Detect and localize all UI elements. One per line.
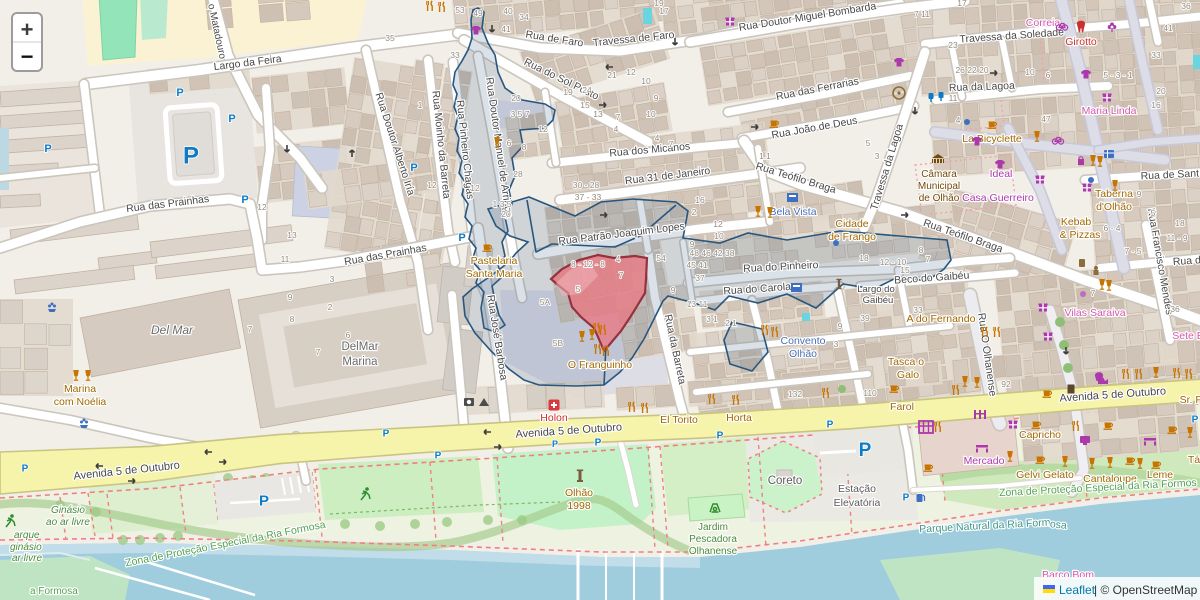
svg-text:2: 2 bbox=[328, 302, 333, 312]
svg-text:4: 4 bbox=[616, 254, 621, 264]
svg-text:15: 15 bbox=[580, 100, 590, 110]
svg-text:7: 7 bbox=[619, 270, 624, 280]
svg-text:110: 110 bbox=[863, 388, 877, 398]
svg-text:Capricho: Capricho bbox=[1019, 429, 1061, 441]
svg-text:7: 7 bbox=[926, 254, 931, 264]
svg-text:20: 20 bbox=[501, 209, 511, 219]
svg-text:132: 132 bbox=[788, 389, 802, 399]
svg-text:Coreto: Coreto bbox=[768, 475, 803, 487]
svg-text:8: 8 bbox=[522, 142, 527, 152]
svg-text:Tá: Tá bbox=[1188, 454, 1200, 466]
svg-text:3: 3 bbox=[330, 274, 335, 284]
svg-text:P: P bbox=[717, 431, 724, 442]
svg-text:Olhanense: Olhanense bbox=[689, 546, 738, 557]
svg-text:33: 33 bbox=[913, 305, 923, 315]
svg-text:4: 4 bbox=[956, 115, 961, 125]
svg-text:9: 9 bbox=[288, 292, 293, 302]
svg-text:6 - 4: 6 - 4 bbox=[1103, 223, 1120, 233]
svg-text:P: P bbox=[595, 438, 602, 449]
svg-text:Del Mar: Del Mar bbox=[151, 323, 194, 337]
svg-text:Mercado: Mercado bbox=[964, 455, 1005, 467]
svg-text:P: P bbox=[827, 420, 834, 431]
svg-text:Tasca o: Tasca o bbox=[888, 356, 924, 368]
svg-text:Sr. P: Sr. P bbox=[1180, 394, 1200, 406]
svg-text:36: 36 bbox=[1181, 1, 1191, 11]
svg-text:Marina: Marina bbox=[64, 383, 96, 395]
svg-text:Cidade: Cidade bbox=[835, 218, 868, 230]
svg-text:Ginásio: Ginásio bbox=[51, 505, 85, 516]
svg-text:Sete B: Sete B bbox=[1172, 330, 1200, 342]
svg-text:3 1: 3 1 bbox=[706, 314, 718, 324]
svg-text:8: 8 bbox=[290, 314, 295, 324]
svg-text:Convento: Convento bbox=[781, 335, 826, 347]
svg-text:12: 12 bbox=[257, 202, 267, 212]
svg-text:17: 17 bbox=[957, 0, 967, 8]
svg-text:24: 24 bbox=[582, 85, 592, 95]
svg-text:Câmara: Câmara bbox=[921, 169, 957, 180]
svg-text:8: 8 bbox=[919, 245, 924, 255]
svg-text:Gaibéu: Gaibéu bbox=[863, 295, 894, 306]
svg-text:Bela Vista: Bela Vista bbox=[769, 206, 816, 218]
svg-text:Horta: Horta bbox=[726, 412, 752, 424]
svg-text:Estação: Estação bbox=[838, 483, 876, 495]
svg-text:+: + bbox=[21, 17, 34, 42]
svg-text:13: 13 bbox=[593, 109, 603, 119]
svg-text:Olhão: Olhão bbox=[789, 348, 817, 360]
svg-text:ao ar livre: ao ar livre bbox=[46, 517, 90, 528]
svg-text:P: P bbox=[176, 87, 183, 99]
svg-text:9: 9 bbox=[690, 239, 695, 249]
svg-text:Maria Linda: Maria Linda bbox=[1082, 105, 1137, 117]
svg-text:Elevatória: Elevatória bbox=[834, 497, 881, 509]
svg-text:49: 49 bbox=[473, 8, 483, 18]
svg-text:5B: 5B bbox=[553, 338, 564, 348]
svg-text:92: 92 bbox=[1001, 379, 1011, 389]
svg-text:12: 12 bbox=[713, 219, 723, 229]
svg-text:Gelvi Gelato: Gelvi Gelato bbox=[1016, 469, 1074, 481]
svg-text:1 3 5: 1 3 5 bbox=[493, 199, 512, 209]
svg-text:12: 12 bbox=[538, 124, 548, 134]
svg-text:osa: osa bbox=[1049, 518, 1067, 532]
svg-text:10: 10 bbox=[641, 76, 651, 86]
svg-text:Municipal: Municipal bbox=[918, 181, 960, 192]
svg-text:18: 18 bbox=[1175, 218, 1185, 228]
svg-text:4: 4 bbox=[614, 124, 619, 134]
svg-text:1: 1 bbox=[418, 100, 423, 110]
svg-text:9: 9 bbox=[838, 321, 843, 331]
svg-text:Olhão: Olhão bbox=[565, 487, 593, 499]
svg-text:16: 16 bbox=[1151, 100, 1161, 110]
svg-text:Vilas Saraiva: Vilas Saraiva bbox=[1064, 307, 1125, 319]
svg-text:28: 28 bbox=[513, 169, 523, 179]
svg-text:O Franguinho: O Franguinho bbox=[568, 359, 632, 371]
svg-text:10: 10 bbox=[1025, 67, 1035, 77]
svg-text:5: 5 bbox=[576, 284, 581, 294]
svg-text:d'Olhão: d'Olhão bbox=[1096, 201, 1132, 213]
svg-text:5A: 5A bbox=[540, 297, 551, 307]
svg-text:Correia: Correia bbox=[1026, 17, 1061, 29]
svg-text:de Olhão: de Olhão bbox=[919, 193, 960, 204]
svg-text:35: 35 bbox=[385, 33, 395, 43]
svg-text:ar livre: ar livre bbox=[12, 553, 42, 564]
svg-text:10: 10 bbox=[646, 109, 656, 119]
svg-text:P: P bbox=[259, 492, 269, 509]
svg-text:33: 33 bbox=[1151, 50, 1161, 60]
svg-text:41: 41 bbox=[501, 24, 511, 34]
svg-text:17: 17 bbox=[659, 6, 669, 16]
svg-text:Santa Maria: Santa Maria bbox=[466, 268, 523, 280]
svg-text:Jardim: Jardim bbox=[698, 522, 728, 533]
svg-text:5: 5 bbox=[1151, 208, 1156, 218]
svg-text:41: 41 bbox=[1163, 23, 1173, 33]
svg-text:6: 6 bbox=[346, 330, 351, 340]
svg-text:26 22 20: 26 22 20 bbox=[955, 65, 988, 75]
svg-text:6: 6 bbox=[1046, 70, 1051, 80]
svg-text:6: 6 bbox=[507, 138, 512, 148]
svg-text:Leaflet: Leaflet bbox=[1059, 583, 1096, 597]
svg-text:P: P bbox=[44, 143, 51, 155]
svg-text:P: P bbox=[383, 429, 390, 440]
svg-text:9: 9 bbox=[654, 93, 659, 103]
svg-text:48 46 42 38: 48 46 42 38 bbox=[690, 248, 735, 258]
svg-text:5: 5 bbox=[866, 138, 871, 148]
svg-text:45 41: 45 41 bbox=[686, 260, 708, 270]
svg-text:a Formosa: a Formosa bbox=[30, 586, 78, 597]
svg-text:Galo: Galo bbox=[897, 369, 919, 381]
svg-text:P: P bbox=[22, 464, 29, 475]
svg-text:Largo do: Largo do bbox=[857, 284, 895, 295]
svg-text:9: 9 bbox=[671, 285, 676, 295]
svg-text:7 - 5: 7 - 5 bbox=[1124, 246, 1141, 256]
svg-text:arque: arque bbox=[14, 530, 40, 541]
svg-text:13: 13 bbox=[287, 230, 297, 240]
svg-text:P: P bbox=[410, 162, 417, 174]
svg-text:P: P bbox=[435, 451, 442, 462]
svg-text:18: 18 bbox=[859, 253, 869, 263]
svg-text:10: 10 bbox=[714, 231, 724, 241]
svg-text:15: 15 bbox=[900, 265, 910, 275]
svg-text:47: 47 bbox=[1041, 114, 1051, 124]
svg-text:Girotto: Girotto bbox=[1065, 36, 1097, 48]
svg-text:La Bicyclette: La Bicyclette bbox=[962, 133, 1022, 145]
svg-text:53: 53 bbox=[455, 5, 465, 15]
svg-text:20: 20 bbox=[511, 93, 521, 103]
svg-text:7: 7 bbox=[248, 324, 253, 334]
svg-text:Farol: Farol bbox=[890, 401, 914, 413]
svg-text:Marina: Marina bbox=[342, 356, 378, 368]
svg-text:com Noélia: com Noélia bbox=[54, 396, 107, 408]
svg-text:P: P bbox=[241, 194, 248, 206]
svg-text:P: P bbox=[458, 232, 465, 244]
svg-text:19: 19 bbox=[563, 87, 573, 97]
svg-text:P: P bbox=[859, 440, 872, 461]
svg-text:7: 7 bbox=[616, 112, 621, 122]
svg-text:34: 34 bbox=[519, 12, 529, 22]
svg-text:9: 9 bbox=[1137, 189, 1142, 199]
svg-text:3: 3 bbox=[875, 151, 880, 161]
svg-text:4: 4 bbox=[655, 133, 660, 143]
svg-text:7: 7 bbox=[1091, 288, 1096, 298]
svg-text:37 - 33: 37 - 33 bbox=[575, 192, 602, 202]
svg-text:1.1: 1.1 bbox=[759, 151, 771, 161]
svg-text:36: 36 bbox=[1170, 304, 1180, 314]
svg-text:Casa Guerreiro: Casa Guerreiro bbox=[962, 192, 1034, 204]
svg-text:Rua da Lagoa: Rua da Lagoa bbox=[949, 80, 1016, 94]
svg-text:3: 3 bbox=[834, 339, 839, 349]
svg-text:20: 20 bbox=[1156, 86, 1166, 96]
svg-text:Ideal: Ideal bbox=[990, 168, 1013, 180]
svg-text:8 - 12 - 8: 8 - 12 - 8 bbox=[571, 259, 605, 269]
svg-text:40: 40 bbox=[503, 6, 513, 16]
svg-text:Holon: Holon bbox=[540, 412, 568, 424]
svg-text:21: 21 bbox=[607, 70, 617, 80]
svg-text:| © OpenStreetMap: | © OpenStreetMap bbox=[1094, 583, 1198, 597]
svg-text:7: 7 bbox=[316, 347, 321, 357]
svg-text:P: P bbox=[552, 439, 558, 449]
svg-text:El Torito: El Torito bbox=[660, 414, 698, 426]
svg-text:7: 7 bbox=[669, 139, 674, 149]
svg-text:11: 11 bbox=[949, 93, 958, 103]
svg-text:Pastelaria: Pastelaria bbox=[471, 255, 518, 267]
svg-text:DelMar: DelMar bbox=[341, 341, 378, 353]
svg-text:5 - 3 - 1: 5 - 3 - 1 bbox=[1103, 70, 1133, 80]
svg-text:54: 54 bbox=[656, 253, 666, 263]
svg-text:P: P bbox=[903, 493, 910, 504]
svg-text:39: 39 bbox=[860, 313, 870, 323]
svg-text:30 - 28: 30 - 28 bbox=[573, 180, 600, 190]
svg-text:P: P bbox=[1192, 415, 1199, 426]
svg-text:33: 33 bbox=[450, 50, 460, 60]
svg-text:13 11: 13 11 bbox=[687, 299, 708, 309]
svg-text:Pescadora: Pescadora bbox=[689, 534, 737, 545]
svg-text:ginásio: ginásio bbox=[10, 542, 42, 553]
svg-text:2: 2 bbox=[692, 207, 697, 217]
svg-text:2 1: 2 1 bbox=[725, 318, 737, 328]
svg-text:& Pizzas: & Pizzas bbox=[1060, 229, 1101, 241]
svg-text:Rua de: Rua de bbox=[1172, 254, 1200, 268]
svg-text:Kebab: Kebab bbox=[1061, 216, 1092, 228]
svg-text:3 5 7: 3 5 7 bbox=[511, 109, 530, 119]
svg-text:1998: 1998 bbox=[567, 500, 591, 512]
svg-text:16: 16 bbox=[695, 195, 705, 205]
svg-text:37: 37 bbox=[695, 273, 705, 283]
svg-text:P: P bbox=[228, 113, 235, 125]
svg-text:11: 11 bbox=[281, 254, 290, 264]
svg-text:P: P bbox=[183, 143, 199, 170]
svg-text:11 - 9: 11 - 9 bbox=[1166, 233, 1187, 243]
svg-text:7 11: 7 11 bbox=[914, 9, 930, 19]
svg-text:12: 12 bbox=[427, 180, 437, 190]
svg-text:23: 23 bbox=[948, 40, 958, 50]
svg-text:12: 12 bbox=[626, 67, 636, 77]
svg-text:12: 12 bbox=[470, 183, 480, 193]
svg-text:−: − bbox=[21, 44, 34, 69]
